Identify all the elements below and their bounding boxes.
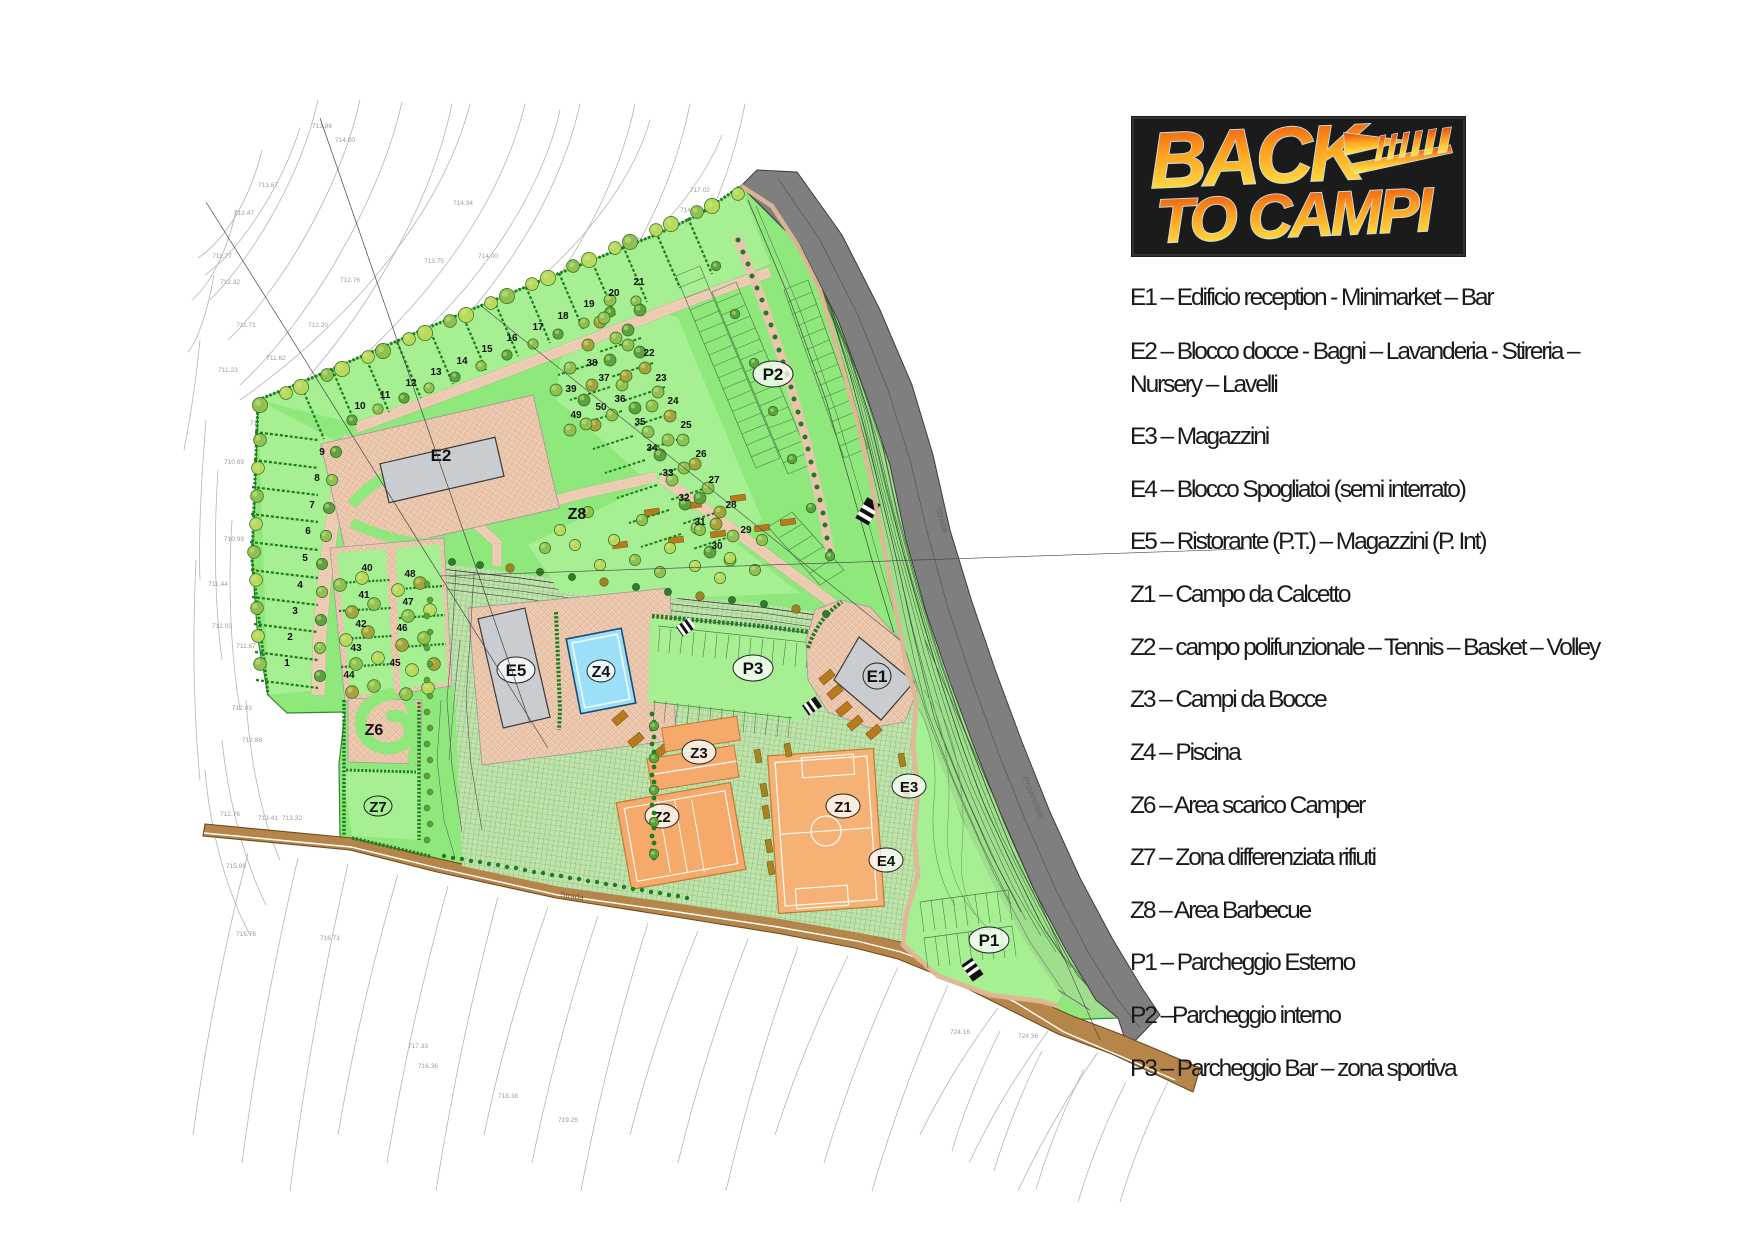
svg-text:714.00: 714.00 bbox=[335, 137, 355, 144]
svg-text:Z6: Z6 bbox=[365, 722, 384, 739]
svg-text:21: 21 bbox=[633, 277, 645, 288]
svg-text:712.88: 712.88 bbox=[242, 737, 262, 744]
svg-text:Strada: Strada bbox=[560, 890, 585, 902]
svg-text:1: 1 bbox=[284, 658, 290, 669]
svg-text:E1 – Edificio reception - Min: E1 – Edificio reception - Minimarket – B… bbox=[1130, 284, 1494, 311]
svg-text:TO CAMPI: TO CAMPI bbox=[1155, 176, 1437, 257]
svg-text:716.36: 716.36 bbox=[418, 1063, 438, 1070]
svg-text:Z8: Z8 bbox=[568, 506, 587, 523]
svg-text:724.16: 724.16 bbox=[950, 1029, 970, 1036]
svg-text:E4 – Blocco Spogliatoi (semi i: E4 – Blocco Spogliatoi (semi interrato) bbox=[1130, 476, 1466, 503]
svg-text:717.33: 717.33 bbox=[408, 1043, 428, 1050]
svg-text:712.20: 712.20 bbox=[308, 322, 328, 329]
svg-text:50: 50 bbox=[595, 402, 607, 413]
svg-text:P1 – Parcheggio Esterno: P1 – Parcheggio Esterno bbox=[1130, 949, 1356, 976]
svg-text:23: 23 bbox=[655, 373, 667, 384]
svg-text:Z3: Z3 bbox=[690, 745, 708, 762]
svg-text:Z4: Z4 bbox=[592, 664, 611, 681]
svg-text:14: 14 bbox=[456, 356, 468, 367]
svg-text:714.34: 714.34 bbox=[453, 200, 473, 207]
svg-text:E1: E1 bbox=[867, 667, 888, 686]
svg-text:714.00: 714.00 bbox=[478, 253, 498, 260]
svg-text:711.23: 711.23 bbox=[218, 367, 238, 374]
svg-text:P3: P3 bbox=[743, 659, 764, 678]
svg-text:713.32: 713.32 bbox=[282, 815, 302, 822]
svg-text:Z2 – campo polifunzionale – Te: Z2 – campo polifunzionale – Tennis – Bas… bbox=[1130, 634, 1602, 661]
svg-text:E2: E2 bbox=[431, 446, 452, 465]
svg-text:Nursery – Lavelli: Nursery – Lavelli bbox=[1130, 371, 1277, 398]
svg-text:35: 35 bbox=[634, 417, 646, 428]
svg-text:717.02: 717.02 bbox=[690, 187, 710, 194]
svg-text:P3 – Parcheggio Bar – zona spo: P3 – Parcheggio Bar – zona sportiva bbox=[1130, 1055, 1458, 1082]
svg-text:16: 16 bbox=[506, 333, 518, 344]
svg-text:E5: E5 bbox=[506, 661, 527, 680]
svg-text:18: 18 bbox=[557, 311, 569, 322]
svg-text:45: 45 bbox=[389, 658, 401, 669]
svg-text:13: 13 bbox=[430, 367, 442, 378]
svg-text:Z7: Z7 bbox=[369, 799, 387, 816]
svg-text:49: 49 bbox=[570, 410, 582, 421]
svg-text:Z7 – Zona differenziata rifiut: Z7 – Zona differenziata rifiuti bbox=[1130, 844, 1376, 871]
svg-text:12: 12 bbox=[405, 378, 417, 389]
svg-text:712.32: 712.32 bbox=[220, 279, 240, 286]
svg-text:710.69: 710.69 bbox=[224, 459, 244, 466]
svg-text:719.25: 719.25 bbox=[558, 1117, 578, 1124]
svg-text:E5 – Ristorante (P.T.) – Magaz: E5 – Ristorante (P.T.) – Magazzini (P. I… bbox=[1130, 528, 1486, 555]
svg-text:712.76: 712.76 bbox=[340, 277, 360, 284]
svg-text:711.44: 711.44 bbox=[208, 581, 228, 588]
svg-text:15: 15 bbox=[481, 344, 493, 355]
svg-text:33: 33 bbox=[662, 468, 674, 479]
svg-text:E3 – Magazzini: E3 – Magazzini bbox=[1130, 423, 1269, 450]
svg-text:Z4 – Piscina: Z4 – Piscina bbox=[1130, 739, 1242, 766]
svg-text:5: 5 bbox=[302, 553, 308, 564]
svg-text:25: 25 bbox=[680, 420, 692, 431]
svg-text:30: 30 bbox=[711, 541, 723, 552]
svg-text:22: 22 bbox=[643, 348, 655, 359]
svg-text:E2 – Blocco docce - Bagni – La: E2 – Blocco docce - Bagni – Lavanderia -… bbox=[1130, 338, 1581, 365]
svg-text:718.38: 718.38 bbox=[498, 1093, 518, 1100]
svg-text:43: 43 bbox=[350, 643, 362, 654]
svg-text:8: 8 bbox=[314, 473, 320, 484]
svg-text:711.87: 711.87 bbox=[236, 643, 256, 650]
svg-text:27: 27 bbox=[708, 475, 720, 486]
svg-text:34: 34 bbox=[646, 443, 658, 454]
svg-text:31: 31 bbox=[694, 517, 706, 528]
svg-text:2: 2 bbox=[287, 632, 293, 643]
svg-text:724.36: 724.36 bbox=[1018, 1033, 1038, 1040]
svg-text:37: 37 bbox=[598, 373, 610, 384]
svg-text:711.71: 711.71 bbox=[236, 322, 256, 329]
svg-text:19: 19 bbox=[583, 299, 595, 310]
svg-text:716.71: 716.71 bbox=[320, 935, 340, 942]
svg-text:3: 3 bbox=[292, 606, 298, 617]
svg-text:40: 40 bbox=[361, 563, 373, 574]
svg-text:38: 38 bbox=[586, 358, 598, 369]
svg-text:711.62: 711.62 bbox=[266, 355, 286, 362]
svg-text:711.77: 711.77 bbox=[212, 253, 232, 260]
svg-text:Z3 – Campi da Bocce: Z3 – Campi da Bocce bbox=[1130, 686, 1327, 713]
svg-text:713.67: 713.67 bbox=[258, 182, 278, 189]
svg-text:42: 42 bbox=[355, 619, 367, 630]
svg-text:17: 17 bbox=[532, 322, 544, 333]
svg-text:Z1 – Campo da Calcetto: Z1 – Campo da Calcetto bbox=[1130, 581, 1351, 608]
svg-text:48: 48 bbox=[404, 569, 416, 580]
svg-text:712.47: 712.47 bbox=[234, 210, 254, 217]
svg-text:Z6 – Area scarico Camper: Z6 – Area scarico Camper bbox=[1130, 792, 1366, 819]
svg-text:713.75: 713.75 bbox=[424, 258, 444, 265]
svg-text:Z8 – Area Barbecue: Z8 – Area Barbecue bbox=[1130, 897, 1312, 924]
svg-text:10: 10 bbox=[354, 401, 366, 412]
svg-text:715.89: 715.89 bbox=[226, 863, 246, 870]
svg-text:11: 11 bbox=[380, 390, 391, 401]
svg-text:Z1: Z1 bbox=[834, 799, 852, 816]
svg-text:715.76: 715.76 bbox=[236, 931, 256, 938]
svg-text:7: 7 bbox=[309, 500, 315, 511]
svg-text:P1: P1 bbox=[979, 931, 1000, 950]
svg-text:9: 9 bbox=[319, 447, 325, 458]
svg-text:712.03: 712.03 bbox=[212, 623, 232, 630]
svg-text:36: 36 bbox=[614, 394, 626, 405]
svg-text:6: 6 bbox=[305, 526, 311, 537]
svg-text:44: 44 bbox=[343, 670, 355, 681]
svg-text:29: 29 bbox=[740, 525, 752, 536]
svg-text:46: 46 bbox=[396, 623, 408, 634]
svg-text:712.76: 712.76 bbox=[220, 811, 240, 818]
svg-text:20: 20 bbox=[608, 288, 620, 299]
svg-text:32: 32 bbox=[678, 493, 690, 504]
svg-text:26: 26 bbox=[695, 449, 707, 460]
svg-text:41: 41 bbox=[358, 590, 370, 601]
svg-text:E4: E4 bbox=[877, 853, 896, 870]
svg-text:710.99: 710.99 bbox=[224, 536, 244, 543]
svg-text:P2 –Parcheggio interno: P2 –Parcheggio interno bbox=[1130, 1002, 1341, 1029]
svg-text:E3: E3 bbox=[900, 779, 918, 796]
svg-text:712.03: 712.03 bbox=[232, 705, 252, 712]
svg-text:24: 24 bbox=[667, 396, 679, 407]
svg-text:713.41: 713.41 bbox=[258, 815, 278, 822]
svg-text:4: 4 bbox=[297, 580, 303, 591]
svg-text:39: 39 bbox=[565, 384, 577, 395]
svg-text:47: 47 bbox=[402, 597, 414, 608]
svg-text:P2: P2 bbox=[763, 365, 784, 384]
